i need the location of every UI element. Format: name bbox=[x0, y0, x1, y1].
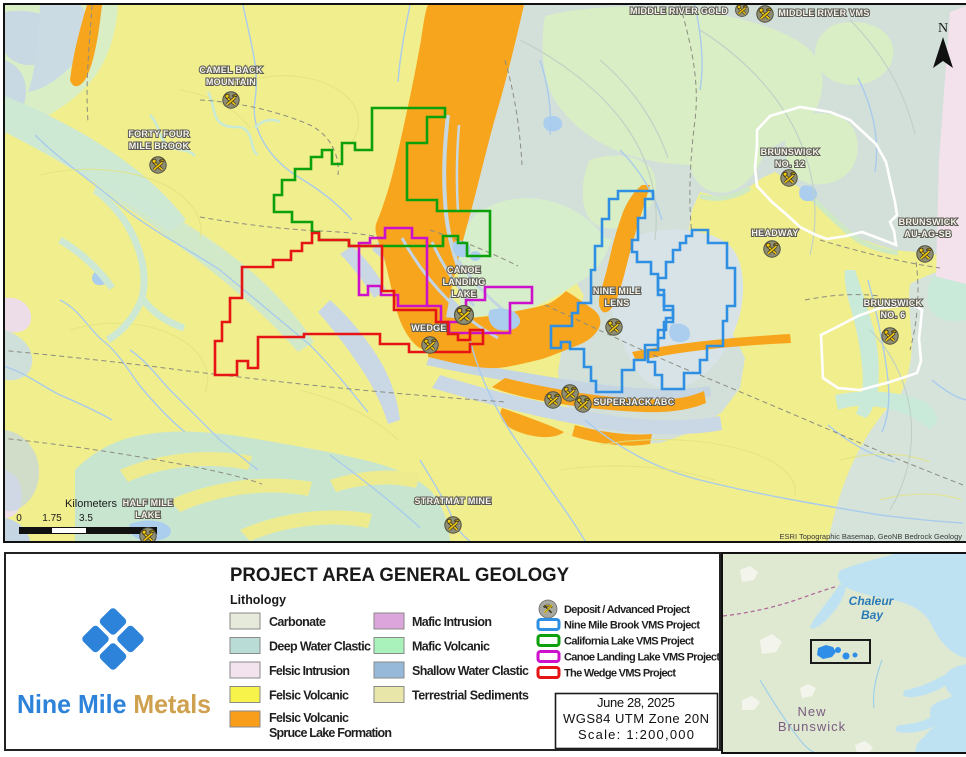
svg-text:3.5: 3.5 bbox=[79, 513, 93, 524]
svg-text:BRUNSWICK: BRUNSWICK bbox=[761, 147, 820, 157]
svg-text:Felsic Volcanic: Felsic Volcanic bbox=[269, 689, 349, 703]
svg-text:LANDING: LANDING bbox=[442, 277, 485, 287]
svg-text:MOUNTAIN: MOUNTAIN bbox=[206, 77, 256, 87]
svg-text:SUPERJACK ABC: SUPERJACK ABC bbox=[593, 397, 674, 407]
svg-text:NO. 12: NO. 12 bbox=[775, 159, 805, 169]
svg-text:June 28, 2025: June 28, 2025 bbox=[597, 695, 675, 710]
svg-text:N: N bbox=[938, 21, 948, 36]
svg-text:Kilometers: Kilometers bbox=[65, 498, 117, 510]
svg-text:NO. 6: NO. 6 bbox=[880, 310, 905, 320]
svg-text:Nine Mile Brook VMS Project: Nine Mile Brook VMS Project bbox=[564, 620, 700, 632]
svg-text:1.75: 1.75 bbox=[42, 513, 62, 524]
svg-text:LAKE: LAKE bbox=[135, 510, 161, 520]
svg-text:Nine Mile Metals: Nine Mile Metals bbox=[17, 689, 211, 719]
svg-text:BRUNSWICK: BRUNSWICK bbox=[864, 298, 923, 308]
svg-text:The Wedge VMS Project: The Wedge VMS Project bbox=[564, 668, 676, 680]
svg-text:WGS84 UTM Zone 20N: WGS84 UTM Zone 20N bbox=[563, 711, 709, 726]
svg-text:FORTY FOUR: FORTY FOUR bbox=[128, 129, 190, 139]
svg-text:Brunswick: Brunswick bbox=[778, 719, 846, 734]
svg-text:ESRI Topographic Basemap, GeoN: ESRI Topographic Basemap, GeoNB Bedrock … bbox=[780, 532, 963, 541]
svg-text:Felsic Volcanic: Felsic Volcanic bbox=[269, 711, 349, 725]
svg-text:LENS: LENS bbox=[604, 298, 629, 308]
svg-text:New: New bbox=[797, 704, 826, 719]
svg-text:Carbonate: Carbonate bbox=[269, 615, 326, 629]
svg-text:NINE MILE: NINE MILE bbox=[593, 286, 641, 296]
svg-text:0: 0 bbox=[16, 513, 22, 524]
svg-text:California Lake VMS Project: California Lake VMS Project bbox=[564, 636, 694, 648]
svg-text:Canoe Landing Lake VMS Project: Canoe Landing Lake VMS Project bbox=[564, 652, 719, 664]
svg-text:Bay: Bay bbox=[861, 608, 884, 622]
svg-text:AU-AG-SB: AU-AG-SB bbox=[904, 229, 952, 239]
svg-text:CAMEL BACK: CAMEL BACK bbox=[199, 65, 263, 75]
svg-text:MILE BROOK: MILE BROOK bbox=[129, 141, 190, 151]
svg-text:PROJECT AREA GENERAL GEOLOGY: PROJECT AREA GENERAL GEOLOGY bbox=[230, 564, 569, 586]
svg-text:Chaleur: Chaleur bbox=[849, 594, 895, 608]
svg-text:LAKE: LAKE bbox=[451, 289, 477, 299]
svg-text:Felsic Intrusion: Felsic Intrusion bbox=[269, 664, 350, 678]
svg-text:Mafic Intrusion: Mafic Intrusion bbox=[412, 615, 492, 629]
svg-text:HEADWAY: HEADWAY bbox=[751, 228, 798, 238]
svg-text:Deposit / Advanced Project: Deposit / Advanced Project bbox=[564, 604, 690, 616]
svg-text:WEDGE: WEDGE bbox=[411, 323, 447, 333]
svg-text:Scale: 1:200,000: Scale: 1:200,000 bbox=[578, 727, 694, 742]
svg-text:Shallow Water Clastic: Shallow Water Clastic bbox=[412, 664, 529, 678]
svg-text:STRATMAT MINE: STRATMAT MINE bbox=[414, 496, 491, 506]
svg-text:MIDDLE RIVER VMS: MIDDLE RIVER VMS bbox=[778, 8, 869, 18]
svg-text:Mafic Volcanic: Mafic Volcanic bbox=[412, 640, 490, 654]
svg-text:Terrestrial Sediments: Terrestrial Sediments bbox=[412, 689, 529, 703]
svg-text:BRUNSWICK: BRUNSWICK bbox=[899, 217, 958, 227]
svg-text:HALF MILE: HALF MILE bbox=[123, 498, 174, 508]
svg-text:Lithology: Lithology bbox=[230, 593, 286, 607]
svg-text:MIDDLE RIVER GOLD: MIDDLE RIVER GOLD bbox=[630, 6, 728, 16]
svg-text:CANOE: CANOE bbox=[447, 265, 481, 275]
svg-text:Spruce Lake Formation: Spruce Lake Formation bbox=[269, 726, 392, 740]
svg-text:Deep Water Clastic: Deep Water Clastic bbox=[269, 640, 371, 654]
